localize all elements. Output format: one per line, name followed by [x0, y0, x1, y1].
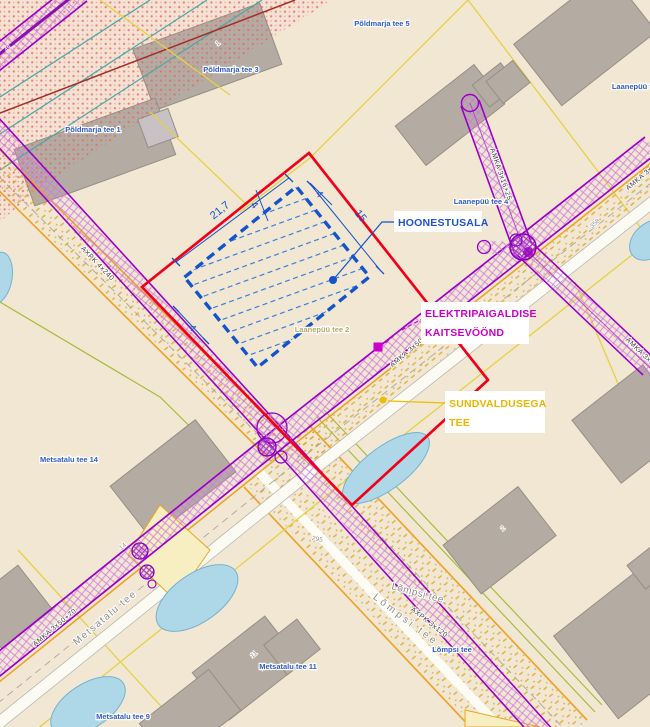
address-label: Põldmarja tee 3	[203, 65, 258, 74]
callout-kaitsevoond-line2: KAITSEVÖÖND	[425, 326, 504, 339]
anchor-dot-icon	[329, 276, 337, 284]
map-canvas[interactable]: 21,7 15 4 4 4 Põldmarja tee 5Põldmarja t…	[0, 0, 650, 727]
address-label: Laanepüü tee 2	[295, 325, 350, 334]
address-label: Põldmarja tee 1	[65, 125, 120, 134]
callout-sundvaldus-line2: TEE	[449, 417, 470, 429]
planning-map: 21,7 15 4 4 4 Põldmarja tee 5Põldmarja t…	[0, 0, 650, 727]
protection-zone-marker-icon	[374, 343, 383, 352]
utility-pole-icon	[510, 234, 536, 260]
callout-sundvaldus-line1: SUNDVALDUSEGA	[449, 398, 547, 410]
callout-hoonestusala: HOONESTUSALA	[398, 217, 489, 229]
address-label: Laanepüü tee	[612, 82, 650, 91]
address-label: Põldmarja tee 5	[354, 19, 409, 28]
address-label: Lõmpsi tee	[432, 645, 472, 654]
address-label: Metsatalu tee 14	[40, 455, 99, 464]
servitude-marker-icon	[380, 397, 387, 404]
address-label: Metsatalu tee 11	[259, 662, 317, 671]
address-label: Metsatalu tee 9	[96, 712, 150, 721]
address-label: Laanepüü tee 4	[454, 197, 509, 206]
callout-kaitsevoond-line1: ELEKTRIPAIGALDISE	[425, 308, 537, 320]
